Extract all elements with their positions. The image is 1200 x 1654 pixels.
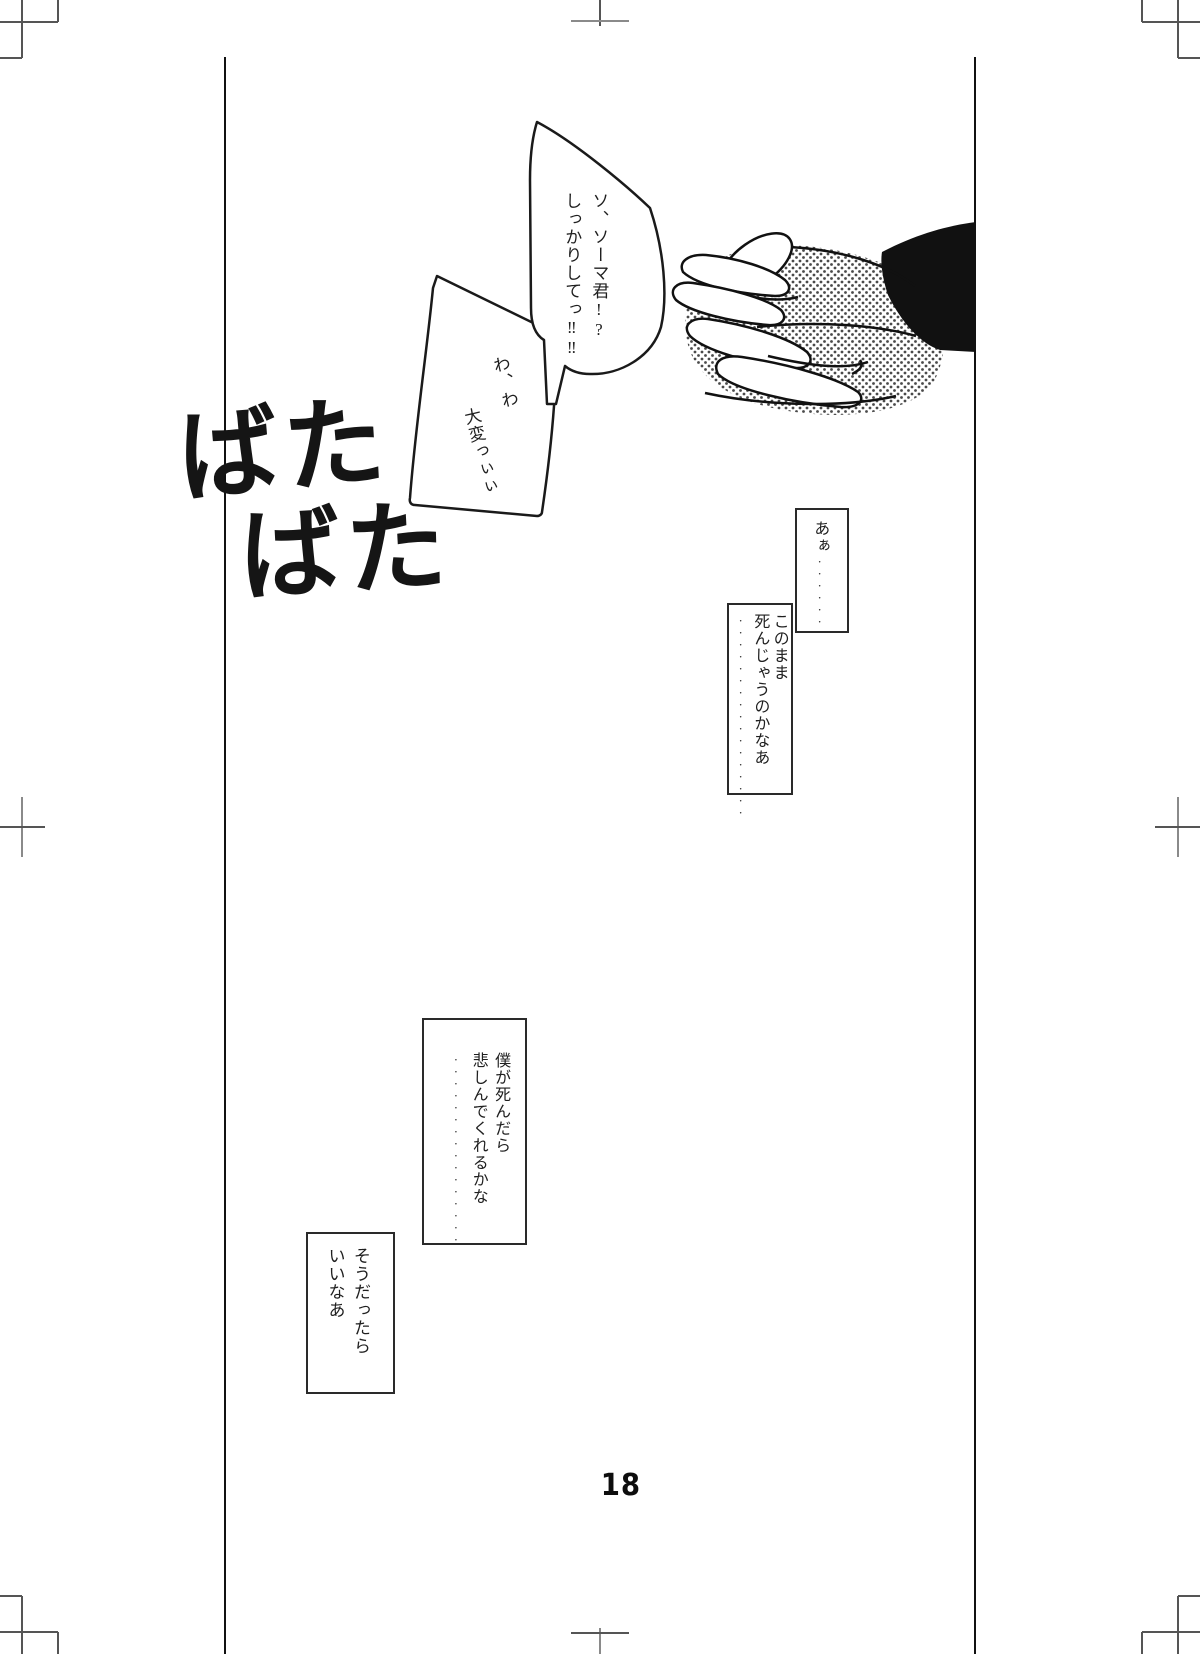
caption-c-line-1: 僕が死んだら [492,1052,509,1154]
caption-c-line-2: 悲しんでくれるかな [470,1052,487,1205]
caption-b-line-2: 死んじゃうのかなあ [751,613,768,766]
caption-d-line-2: いいなあ [326,1247,345,1319]
caption-d-text: そうだったら いいなあ [322,1247,373,1355]
hand-artwork [673,222,976,415]
bubble-1-line-2: しっかりしてっ‼‼ [562,192,581,358]
sfx-bata-2: ばた [238,497,455,608]
caption-a-text: あぁ······ [810,520,829,626]
caption-b-text: このまま 死んじゃうのかなあ ················· [731,613,789,817]
caption-a-line-1: あぁ [811,520,828,554]
caption-c-dots: ················ [448,1052,463,1244]
caption-d-line-1: そうだったら [351,1247,370,1355]
caption-a-dots: ······ [812,554,827,626]
caption-b-line-1: このまま [771,613,788,681]
bubble-1-line-1: ソ、ソーマ君!? [589,192,608,340]
page-number: 18 [601,1468,641,1503]
caption-c-text: 僕が死んだら 悲しんでくれるかな ················ [444,1052,511,1244]
speech-bubble-1-text: ソ、ソーマ君!? しっかりしてっ‼‼ [558,192,612,358]
manga-page: ばた ばた ソ、ソーマ君!? しっかりしてっ‼‼ わ、わ 大変っぃぃ あぁ···… [0,0,1200,1654]
caption-b-dots: ················· [733,613,748,817]
